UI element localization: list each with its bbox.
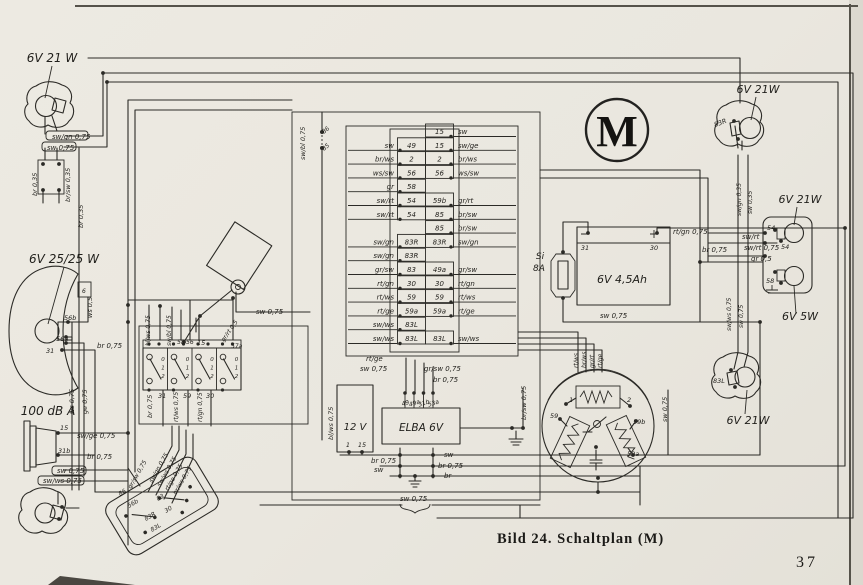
wire-color-label: sw/ge: [458, 142, 478, 150]
wire-label: br 0,75: [433, 376, 459, 384]
horn: [24, 421, 56, 471]
brake-bulb-icon: [785, 224, 804, 243]
coil-terminal-15: 15: [358, 441, 366, 449]
terminal-dot: [398, 342, 401, 345]
terminal-label: 15: [60, 424, 68, 432]
wire-label: br/sw 0,75: [520, 386, 528, 420]
contact-circle: [171, 378, 177, 384]
wire-color-label: br/ws: [375, 156, 394, 164]
terminal-label: 56a: [56, 335, 68, 343]
wire-color-label: rt/ge: [377, 307, 394, 315]
wire-label: bl/ws 0,75: [145, 315, 152, 346]
wire-label: sw 0,75: [600, 312, 628, 320]
junction-dot: [594, 445, 598, 449]
junction-dot: [57, 517, 61, 521]
junction-dot: [773, 270, 777, 274]
switch-position-label: 1: [235, 366, 239, 372]
bulb-icon: [35, 503, 55, 523]
junction-dot: [360, 450, 364, 454]
rear-right-top-lamp-rating: 6V 21W: [737, 83, 781, 96]
wire-label: br 0,35: [31, 173, 39, 196]
wire-label: gr/rt 0,5: [220, 319, 240, 343]
wire-label: br 0,75: [438, 462, 464, 470]
terminal-dot: [422, 391, 426, 395]
junction-dot: [57, 162, 61, 166]
wire-color-label: br/sw: [458, 211, 477, 219]
terminal-dot: [196, 388, 199, 391]
wire-tag: sw/ws 0,75: [43, 477, 82, 485]
wire-label: sw/rt: [742, 233, 760, 241]
switch-position-label: 0: [210, 357, 214, 363]
switch-position-label: 2: [186, 374, 190, 380]
junction-dot: [60, 348, 64, 352]
terminal-label: 30: [163, 505, 173, 515]
elba-terminals: 4949a31b53a: [401, 391, 440, 408]
coil-label: 12 V: [344, 422, 368, 433]
wire-color-label: sw/gn: [373, 252, 394, 260]
wire-label: sw/bl 0,75: [299, 127, 307, 160]
magneto-inner-arc: [548, 369, 648, 400]
junction-dot: [558, 417, 562, 421]
terminal-number: 83: [407, 266, 416, 274]
switch-position-label: 1: [210, 366, 214, 372]
coil-body: [337, 385, 373, 452]
junction-dot: [431, 464, 435, 468]
elba-label: ELBA 6V: [399, 422, 444, 434]
terminal-dot: [449, 342, 452, 345]
wire-color-label: rt/gn: [458, 280, 475, 288]
wire-color-label: gr: [387, 183, 395, 191]
switch-position-label: 0: [186, 357, 190, 363]
terminal-number: 59a: [433, 307, 446, 315]
terminal-number: 83R: [405, 252, 419, 260]
junction-dot: [41, 188, 45, 192]
tail-bulb-base: [777, 270, 785, 281]
wire-label: rt/gn 0,75: [673, 228, 708, 236]
junction-dot: [398, 474, 402, 478]
junction-dot: [105, 80, 109, 84]
headlight-shell: [9, 266, 78, 395]
coil-winding-icon: [580, 391, 612, 403]
terminal-dot: [147, 388, 150, 391]
junction-dot: [431, 474, 435, 478]
headlight-rating: 6V 25/25 W: [29, 252, 100, 266]
light-switch-block: 012012012012: [143, 340, 241, 392]
wire-color-label: sw/gn: [458, 238, 479, 246]
bulb-base: [727, 371, 739, 385]
wire-label: sw/rt 0,75: [744, 244, 780, 252]
junction-dot: [126, 303, 130, 307]
terminal-number: 59: [407, 294, 416, 302]
rating-leader-line: [751, 97, 756, 120]
terminal-number: 83L: [405, 321, 418, 329]
magneto-circle: [542, 370, 654, 482]
terminal-label: 59: [183, 392, 191, 400]
junction-dot: [843, 226, 847, 230]
junction-dot: [736, 137, 740, 141]
wire-color-label: sw/ws: [458, 335, 479, 343]
wire-color-label: gr/rt: [458, 197, 474, 205]
page-number: 37: [796, 554, 818, 571]
wire-tag: sw 0,75: [47, 144, 75, 152]
figure-caption: Bild 24. Schaltplan (M): [497, 531, 664, 547]
switch-position-label: 2: [235, 374, 239, 380]
battery: 6V 4,5Ah 31 30: [577, 227, 670, 305]
fuse-label-si: Si: [536, 252, 545, 262]
cable-bundle-brace: [400, 504, 430, 513]
switch-lever: [224, 359, 235, 379]
wire-label: sw: [444, 451, 454, 459]
terminal-number: 2: [409, 156, 414, 164]
terminal-number: 83R: [405, 238, 419, 246]
terminal-dot: [172, 388, 175, 391]
terminal-label: 30: [206, 392, 214, 400]
terminal-label: 31: [158, 392, 166, 400]
wire-label: rt/ws 0,75: [173, 392, 180, 422]
terminal-dot: [403, 391, 407, 395]
lamp-housing: [19, 488, 68, 534]
terminal-label: 31b: [58, 447, 70, 455]
motor-letter: M: [596, 107, 638, 156]
central-terminal-strip: 15sw4915swsw/ge22br/wsbr/ws5656ws/swws/s…: [348, 124, 516, 345]
wire-label: br/ws: [581, 352, 588, 368]
wire-label: sw 0,75: [256, 308, 284, 316]
terminal-dot: [449, 176, 452, 179]
page-corner-shadow: [48, 576, 135, 585]
horn-plate: [24, 421, 30, 471]
wire-label: br 0,75: [97, 342, 123, 350]
terminal-number: 49a: [433, 266, 446, 274]
junction-dot: [729, 368, 733, 372]
wire-label: sw/ws 0,75: [726, 297, 733, 331]
terminal-label: 56: [186, 339, 194, 346]
junction-dot: [586, 231, 590, 235]
wire-label: sw/gn 0,35: [736, 183, 743, 216]
terminal-number: 30: [435, 280, 444, 288]
junction-dot: [564, 402, 568, 406]
terminal-number: 15: [435, 142, 444, 150]
terminal-number: 83L: [405, 335, 418, 343]
terminal-label: 86: [117, 488, 127, 498]
junction-dot: [126, 320, 130, 324]
switch-cells: 012012012012: [147, 342, 239, 391]
wire-tag: sw/gn 0,75: [52, 133, 91, 141]
terminal-dot: [398, 218, 401, 221]
junction-dot: [758, 320, 762, 324]
lamp-housing: [25, 82, 74, 128]
junction-dot: [733, 385, 737, 389]
terminal-label: 59: [550, 412, 558, 420]
junction-dot: [398, 464, 402, 468]
terminal-number: 56: [407, 169, 416, 177]
terminal-number: 85: [435, 211, 444, 219]
contact-circle: [220, 378, 226, 384]
terminal-number: 59a: [405, 307, 418, 315]
battery-terminal-30: 30: [650, 244, 658, 252]
horn-plate: [30, 426, 36, 467]
terminal-label: 83L: [149, 522, 162, 534]
front-left-lamp-rating: 6V 21 W: [27, 51, 79, 65]
wire-label: br: [444, 472, 452, 480]
tail-bulb-icon: [785, 267, 804, 286]
wire-label: sw 0,35: [747, 191, 754, 214]
junction-dot: [347, 450, 351, 454]
junction-dot: [431, 453, 435, 457]
wire-color-label: gr/sw: [458, 266, 477, 274]
wire-color-label: gr/sw: [375, 266, 394, 274]
switch-lever: [175, 359, 186, 379]
wire-label: sw/bl 0,75: [166, 315, 173, 346]
wire-label: sw 0,75: [360, 365, 388, 373]
junction-dot: [628, 404, 632, 408]
switch-position-label: 0: [161, 357, 165, 363]
terminal-number: 56: [435, 169, 444, 177]
junction-dot: [413, 474, 417, 478]
battery-rating: 6V 4,5Ah: [597, 273, 647, 286]
wire-color-label: sw: [385, 142, 395, 150]
ignition-lock: [207, 222, 272, 294]
ignition-coil-box: 12 V 1 15: [337, 385, 373, 452]
switch-lever: [199, 359, 210, 379]
terminal-dot: [221, 388, 224, 391]
battery-polarity-marks: [581, 230, 658, 238]
fuse-element: [558, 261, 568, 289]
wire-label: ws 0,5: [86, 297, 94, 318]
switch-position-label: 2: [161, 374, 165, 380]
terminal-number: 85: [435, 225, 444, 233]
junction-dot: [158, 304, 162, 308]
wire-label: gr/sw 0,75: [424, 365, 461, 373]
terminal-dot: [157, 342, 160, 345]
terminal-dot: [412, 391, 416, 395]
center-boundary-frame: [292, 112, 540, 500]
rating-leader-line: [794, 207, 797, 314]
terminal-number: 15: [435, 128, 444, 136]
wire-color-label: br/sw: [458, 225, 477, 233]
terminal-number: 59b: [433, 197, 447, 205]
terminal-label: 2: [627, 396, 631, 404]
junction-dot: [561, 250, 565, 254]
junction-dot: [398, 453, 402, 457]
lock-knob: [231, 280, 245, 294]
rating-leader-line: [48, 267, 64, 324]
switch-position-label: 2: [210, 374, 214, 380]
indicator-label: 6: [82, 288, 86, 295]
wire-label: sw/ge 0,75: [77, 432, 116, 440]
terminal-dot: [431, 391, 435, 395]
wire-label: sw 0,75: [661, 397, 669, 422]
switch-position-label: 1: [161, 366, 165, 372]
wiring-diagram: 012012012012 15sw4915swsw/ge22br/wsbr/ws…: [0, 0, 863, 585]
wire-label: br 0,35: [77, 205, 85, 228]
junction-dot: [561, 296, 565, 300]
junction-dot: [732, 119, 736, 123]
labels-layer: 6V 21 W6V 25/25 W100 dB A6V 21W6V 21W6V …: [21, 51, 823, 534]
junction-dot: [126, 431, 130, 435]
battery-body: [577, 227, 670, 305]
switch-lever: [150, 359, 161, 379]
terminal-number: 83L: [433, 335, 446, 343]
wire-label: bl/ws 0,75: [327, 407, 335, 440]
terminal-label: 31: [46, 347, 54, 355]
elba-terminal-label: 53a: [427, 398, 440, 408]
wire-label: sw 0,75: [400, 495, 428, 503]
terminal-label: 58: [766, 277, 774, 285]
page-edge-band: [849, 0, 863, 585]
terminal-number: 30: [407, 280, 416, 288]
terminal-label: 54: [781, 243, 789, 251]
junction-dot: [510, 426, 514, 430]
wire-label: br 0,75: [146, 395, 154, 418]
junction-dot: [698, 260, 702, 264]
rear-right-bottom-lamp-rating: 6V 21W: [727, 414, 771, 427]
wire-color-label: ws/sw: [458, 169, 479, 177]
wire-color-label: sw/rt: [377, 211, 395, 219]
wire-label: br 0,75: [702, 246, 728, 254]
terminal-number: 54: [407, 211, 416, 219]
horn-body: [36, 428, 56, 465]
terminal-dot: [449, 245, 452, 248]
terminal-number: 2: [437, 156, 442, 164]
junction-dot: [521, 426, 525, 430]
junction-dot: [779, 281, 783, 285]
terminal-label: 57a: [231, 343, 243, 350]
wire-color-label: sw/gn: [373, 238, 394, 246]
terminal-label: 54: [767, 224, 775, 232]
wire-label: ws 0,75: [68, 389, 76, 414]
tail-lamp-rating: 6V 5W: [782, 310, 819, 323]
scanned-manual-page: 012012012012 15sw4915swsw/ge22br/wsbr/ws…: [0, 0, 863, 585]
wire-tag: sw 0,75: [57, 467, 85, 475]
wire-label: gr/rt: [589, 354, 596, 368]
wire-label: br 0,75: [371, 457, 397, 465]
wire-label: rt/gn 0,75: [197, 392, 204, 422]
terminal-label: 83R: [143, 511, 157, 523]
fuse-label-8a: 8A: [533, 264, 545, 274]
terminal-label: 83L: [713, 377, 725, 385]
wire-color-label: br/ws: [458, 156, 477, 164]
terminal-dot: [206, 342, 209, 345]
terminal-number: 58: [407, 183, 416, 191]
coil-terminal-1: 1: [346, 441, 350, 449]
junction-dot: [60, 505, 64, 509]
wire-label: rt/ws: [573, 353, 580, 368]
wire-label: rt/ge: [597, 353, 604, 368]
junction-dot: [101, 71, 105, 75]
wire-label: sw 0,75: [738, 305, 745, 328]
wire-label: br/sw 0,35: [64, 168, 72, 202]
wire-color-label: sw/ws: [373, 335, 394, 343]
terminal-label: 15: [197, 339, 205, 347]
switch-position-label: 1: [186, 366, 190, 372]
rating-leader-line: [745, 390, 747, 414]
junction-dot: [655, 231, 659, 235]
terminal-label: 59b: [633, 418, 645, 426]
wire-color-label: rt/ws: [458, 294, 476, 302]
terminal-dot: [449, 314, 452, 317]
wire-label: ge 0,75: [81, 389, 89, 414]
lock-body: [207, 222, 272, 290]
junction-dot: [41, 162, 45, 166]
left-generator-coil: [550, 417, 589, 468]
junction-dot: [231, 296, 235, 300]
contact-circle: [147, 378, 153, 384]
wire-color-label: rt/ws: [377, 294, 395, 302]
terminal-number: 59: [435, 294, 444, 302]
brake-bulb-base: [777, 228, 785, 239]
wire-color-label: ws/sw: [373, 169, 394, 177]
wire-label: gr 0,5: [751, 255, 772, 263]
wire-color-label: sw/rt: [377, 197, 395, 205]
contact-circle: [196, 378, 202, 384]
wire-label: sw: [374, 466, 384, 474]
terminal-number: 54: [407, 197, 416, 205]
battery-terminal-31: 31: [581, 244, 589, 252]
fuse: Si 8A: [533, 252, 575, 297]
wire-color-label: sw: [458, 128, 468, 136]
bulb-base: [52, 98, 66, 113]
bulb-icon: [740, 118, 761, 139]
frames: [139, 112, 540, 500]
brake-lamp-rating: 6V 21W: [779, 193, 823, 206]
junction-dot: [198, 314, 202, 318]
wire-color-label: rt/ge: [458, 307, 475, 315]
wire-label: rt/ge: [366, 355, 383, 363]
wire-color-label: rt/gn: [377, 280, 394, 288]
junction-dot: [596, 476, 600, 480]
wire-label: br 0,75: [87, 453, 113, 461]
terminal-label: 83R: [713, 117, 728, 129]
terminal-number: 49: [407, 142, 416, 150]
terminal-label: 56b: [64, 314, 76, 322]
terminal-number: 83R: [433, 238, 447, 246]
terminal-label: 59a: [627, 450, 639, 458]
motor-mark: M: [586, 99, 648, 161]
terminal-label: 58: [177, 339, 185, 346]
wire-color-label: sw/ws: [373, 321, 394, 329]
terminal-label: 1: [569, 396, 573, 404]
switch-position-label: 0: [235, 357, 239, 363]
junction-dot: [57, 188, 61, 192]
junction-dot: [596, 490, 600, 494]
